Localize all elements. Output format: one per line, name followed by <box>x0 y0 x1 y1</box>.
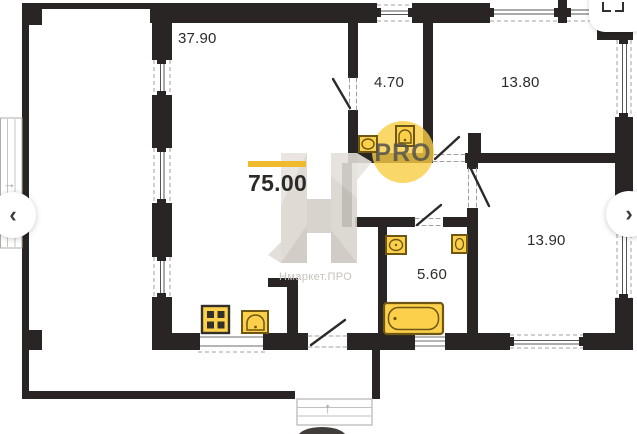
chevron-right-icon: › <box>625 201 632 227</box>
fullscreen-expand-icon <box>602 2 624 12</box>
bathroom-sink-icon <box>386 236 406 254</box>
floorplan-viewer: 37.90 4.70 13.80 13.90 5.60 75.00 PRO Нм… <box>0 0 637 434</box>
kitchen-sink-icon <box>242 311 268 333</box>
toilet-icon <box>396 126 414 146</box>
watermark-logo <box>268 153 372 263</box>
wc-sink-icon <box>359 136 377 152</box>
bathtub-icon <box>384 303 443 334</box>
fullscreen-button[interactable] <box>589 0 637 32</box>
floorplan-canvas <box>0 0 637 434</box>
stove-icon <box>202 306 229 333</box>
bush-icon <box>298 427 346 434</box>
bathroom-sink2-icon <box>452 235 467 253</box>
porch-steps <box>297 399 372 425</box>
chevron-left-icon: ‹ <box>9 202 16 228</box>
